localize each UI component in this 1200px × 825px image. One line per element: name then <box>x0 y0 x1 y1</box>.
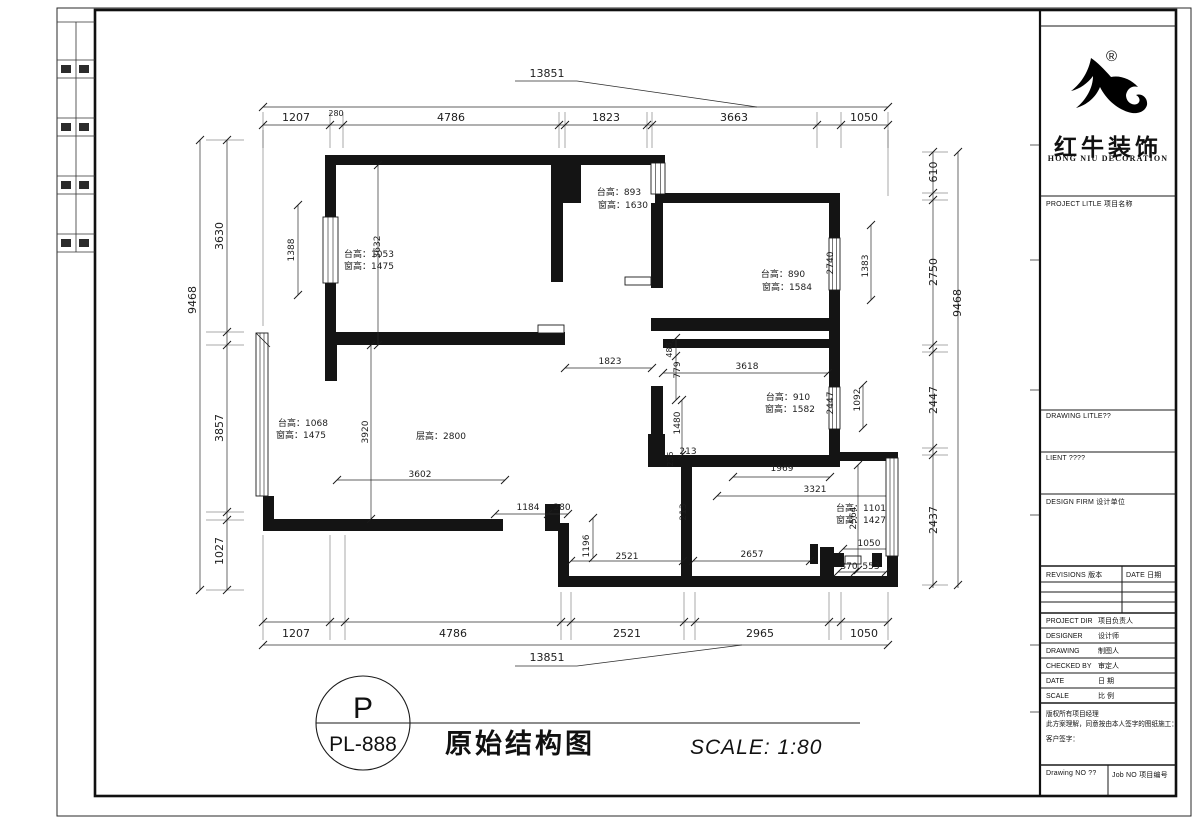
row-label-cn: 审定人 <box>1098 663 1119 670</box>
mini-table-text-marks <box>61 181 71 189</box>
window-symbols <box>651 163 665 194</box>
mini-table-text-marks <box>79 181 89 189</box>
dim-label: 1196 <box>582 534 592 557</box>
room-label: 台高：910 <box>766 391 810 403</box>
room-label: 窗高：1582 <box>765 403 815 415</box>
plan-walls <box>810 544 818 564</box>
row-label-en: PROJECT DIR <box>1046 618 1098 625</box>
plan-walls <box>325 155 665 165</box>
row-label-cn: 比 例 <box>1098 693 1114 700</box>
dim-label: 1383 <box>861 255 871 278</box>
plan-walls <box>829 343 840 387</box>
plan-walls <box>325 345 337 381</box>
field-job-no: Job NO 项目编号 <box>1112 770 1168 780</box>
dim-label: 1207 <box>282 627 310 640</box>
plan-walls <box>648 455 840 467</box>
dim-label: 1050 <box>850 627 878 640</box>
dim-label: 2437 <box>927 506 940 534</box>
dim-label: 370 <box>840 562 857 572</box>
dim-label: 2740 <box>826 251 836 274</box>
dim-label: 3663 <box>720 111 748 124</box>
note-line-1: 版权所有项目经理 <box>1046 708 1099 718</box>
hongniu-bird-logo <box>1071 58 1147 113</box>
dim-label: 1027 <box>213 537 226 565</box>
plan-walls <box>651 318 840 331</box>
plan-walls <box>336 332 565 345</box>
row-drawing: DRAWING制图人 <box>1046 646 1119 656</box>
plan-walls <box>655 193 840 203</box>
dim-label: 280 <box>553 503 570 513</box>
registered-trademark-icon: ® <box>1106 48 1117 65</box>
window-symbols <box>886 458 898 556</box>
row-label-en: CHECKED BY <box>1046 663 1098 670</box>
dim-label: 3618 <box>736 362 759 372</box>
row-label-cn: 日 期 <box>1098 678 1114 685</box>
plan-walls <box>325 165 336 217</box>
dim-label: 1480 <box>673 411 683 434</box>
field-client: LIENT ???? <box>1046 455 1085 462</box>
plan-walls <box>829 201 840 238</box>
dim-label: 779 <box>673 361 683 378</box>
dimension-lines <box>577 81 757 107</box>
room-label: 台高：893 <box>597 186 641 198</box>
field-project-title: PROJECT LITLE 项目名称 <box>1046 199 1133 209</box>
stamp-code-bottom: PL-888 <box>316 733 410 757</box>
dim-label: 2750 <box>927 258 940 286</box>
dim-label: 1050 <box>858 539 881 549</box>
plan-thresholds <box>625 277 651 285</box>
mini-table-text-marks <box>79 239 89 247</box>
plan-thresholds <box>538 325 564 333</box>
mini-table-text-marks <box>79 123 89 131</box>
revisions-date-header: DATE 日期 <box>1126 570 1162 580</box>
mini-table-text-marks <box>79 65 89 73</box>
field-drawing-title: DRAWING LITLE?? <box>1046 413 1111 420</box>
dim-label: 2657 <box>741 550 764 560</box>
row-label-cn: 项目负责人 <box>1098 618 1133 625</box>
dim-label: 2447 <box>826 392 836 415</box>
room-label: 层高：2800 <box>416 430 466 442</box>
room-label: 窗高：1427 <box>836 514 886 526</box>
drawing-title: 原始结构图 <box>445 722 595 761</box>
row-label-cn: 制图人 <box>1098 648 1119 655</box>
dim-label: 1823 <box>599 357 622 367</box>
dim-label: 553 <box>862 562 879 572</box>
note-line-3: 客户签字： <box>1046 733 1079 743</box>
room-label: 窗高：1630 <box>598 199 648 211</box>
dim-label: 13851 <box>530 651 565 664</box>
window-symbols <box>256 333 268 496</box>
row-scale: SCALE比 例 <box>1046 691 1114 701</box>
plan-walls <box>263 155 898 587</box>
room-label: 窗高：1475 <box>344 260 394 272</box>
dim-label: 213 <box>679 503 689 520</box>
row-label-en: SCALE <box>1046 693 1098 700</box>
dim-label: 9468 <box>951 289 964 317</box>
dim-label: 3602 <box>409 470 432 480</box>
scale-text: SCALE: 1:80 <box>690 736 822 760</box>
mini-table-text-marks <box>61 65 71 73</box>
revisions-header: REVISIONS 版本 <box>1046 570 1102 580</box>
plan-walls <box>651 203 663 288</box>
row-label-en: DATE <box>1046 678 1098 685</box>
dim-label: 1092 <box>853 389 863 412</box>
mini-table-text-marks <box>61 239 71 247</box>
dim-label: 2564 <box>849 506 859 529</box>
plan-walls <box>558 576 898 587</box>
plan-walls <box>551 165 563 282</box>
room-label: 窗高：1584 <box>762 281 812 293</box>
dimension-lines <box>577 645 742 666</box>
room-label: 台高：1101 <box>836 502 886 514</box>
plan-walls <box>563 165 581 203</box>
room-label: 台高：1053 <box>344 248 394 260</box>
room-label: 窗高：1475 <box>276 429 326 441</box>
row-label-en: DRAWING <box>1046 648 1098 655</box>
dim-label: 13851 <box>530 67 565 80</box>
dim-label: 3630 <box>213 222 226 250</box>
dim-label: 3920 <box>361 420 371 443</box>
dim-label: 2965 <box>746 627 774 640</box>
stamp-code-top: P <box>316 692 410 726</box>
dim-label: 1207 <box>282 111 310 124</box>
dim-label: 1050 <box>850 111 878 124</box>
dim-label: 610 <box>927 162 940 183</box>
row-label-cn: 设计师 <box>1098 633 1119 640</box>
dim-label: 2521 <box>616 552 639 562</box>
dim-label: 2521 <box>613 627 641 640</box>
window-symbols <box>256 163 898 556</box>
mini-table-text-marks <box>61 123 71 131</box>
field-drawing-no: Drawing NO ?? <box>1046 770 1096 777</box>
row-date: DATE日 期 <box>1046 676 1114 686</box>
dim-label: 3321 <box>804 485 827 495</box>
left-mini-table <box>57 22 95 252</box>
note-line-2: 此方案理解，同意按由本人签字的图纸施工： <box>1046 718 1178 728</box>
row-checked-by: CHECKED BY审定人 <box>1046 661 1119 671</box>
room-label: 台高：890 <box>761 268 805 280</box>
plan-walls <box>663 339 840 348</box>
plan-walls <box>820 547 834 578</box>
dim-label: 1823 <box>592 111 620 124</box>
plan-walls <box>651 386 663 434</box>
dim-label: 213 <box>679 447 696 457</box>
dim-label: 1969 <box>771 464 794 474</box>
brand-name-en: HONG NIU DECORATION <box>1040 154 1176 163</box>
dim-label: 1184 <box>517 503 540 513</box>
dim-label: 1388 <box>287 238 297 261</box>
dim-label: 9468 <box>186 286 199 314</box>
plan-walls <box>263 496 274 521</box>
window-symbols <box>323 217 338 283</box>
dim-label: 4786 <box>439 627 467 640</box>
plan-walls <box>325 283 336 345</box>
dim-label: 4786 <box>437 111 465 124</box>
dim-label: 235 <box>666 451 675 466</box>
plan-canvas: 1385112072804786182336631050120747862521… <box>0 0 1200 825</box>
field-design-firm: DESIGN FIRM 设计单位 <box>1046 497 1125 507</box>
row-label-en: DESIGNER <box>1046 633 1098 640</box>
dim-label: 488 <box>665 342 674 357</box>
plan-walls <box>829 290 840 343</box>
row-project-dir: PROJECT DIR项目负责人 <box>1046 616 1133 626</box>
plan-walls <box>263 519 503 531</box>
mini-table-text-marks <box>61 65 89 247</box>
drawing-sheet: 1385112072804786182336631050120747862521… <box>0 0 1200 825</box>
dim-label: 2447 <box>927 386 940 414</box>
row-designer: DESIGNER设计师 <box>1046 631 1119 641</box>
room-label: 台高：1068 <box>278 417 328 429</box>
plan-walls <box>558 523 569 583</box>
plan-walls <box>681 467 692 577</box>
dim-label: 280 <box>328 109 343 118</box>
dim-label: 3857 <box>213 414 226 442</box>
